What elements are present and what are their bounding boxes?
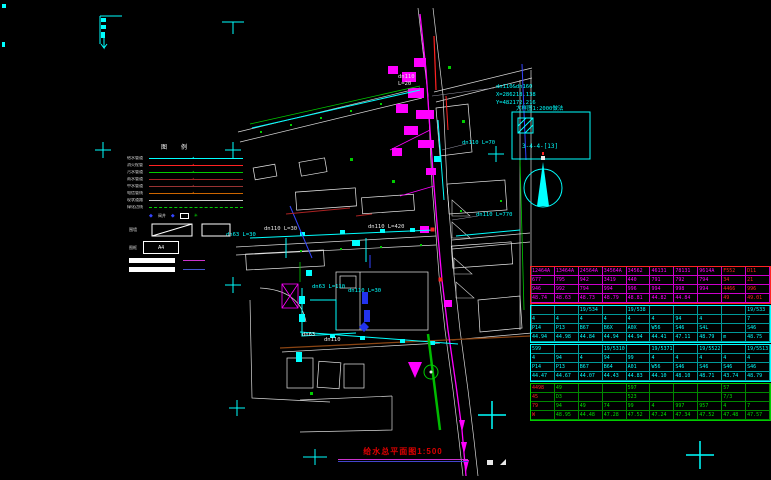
elevation-table: 12464A13464A24564A34564A3456246131781319… bbox=[530, 266, 771, 422]
pipe-label: dn110 L=770 bbox=[476, 212, 512, 218]
legend-symbol-row: ◆ 阀井 ◆ ✳ bbox=[149, 213, 243, 219]
table-cell: S4L bbox=[698, 324, 722, 333]
sheet-size-box: A4 bbox=[143, 241, 179, 254]
legend-title: 图例 bbox=[161, 142, 243, 151]
table-cell: 957 bbox=[698, 402, 722, 411]
table-cell bbox=[555, 306, 579, 315]
table-cell: 44.82 bbox=[650, 294, 674, 303]
legend-item: 污水管道 ▲ bbox=[127, 169, 243, 175]
table-cell: 599 bbox=[531, 345, 555, 354]
table-cell: P14 bbox=[531, 363, 555, 372]
table-cell: 47.52 bbox=[627, 411, 651, 420]
blue-line-sample bbox=[183, 269, 205, 270]
detail-box-code: 3-4-4-[13] bbox=[522, 143, 558, 150]
table-cell: P13 bbox=[555, 324, 579, 333]
pipe-label: dn110 L=70 bbox=[462, 140, 495, 146]
table-cell: S46 bbox=[698, 363, 722, 372]
legend-line-sample bbox=[149, 207, 243, 208]
well-square-icon bbox=[180, 213, 189, 219]
table-cell: 4 bbox=[698, 315, 722, 324]
pipe-label: L=20 bbox=[398, 81, 411, 87]
table-cell bbox=[650, 393, 674, 402]
table-cell: 19/5513 bbox=[746, 345, 770, 354]
table-cell bbox=[674, 384, 698, 393]
legend-line-sample: ▲ bbox=[149, 179, 243, 180]
table-cell: A01 bbox=[627, 363, 651, 372]
table-cell: 19/5522 bbox=[698, 345, 722, 354]
pipe-label: dn63 L=110 bbox=[312, 284, 345, 290]
table-cell: 21 bbox=[746, 276, 770, 285]
table-cell: S46 bbox=[674, 324, 698, 333]
table-cell: 13464A bbox=[555, 267, 579, 276]
table-cell: 996 bbox=[746, 285, 770, 294]
blue-fittings bbox=[359, 292, 370, 332]
table-cell: 794 bbox=[698, 276, 722, 285]
table-cell: D3 bbox=[555, 393, 579, 402]
table-cell: 994 bbox=[698, 285, 722, 294]
table-cell: W56 bbox=[650, 324, 674, 333]
table-cell bbox=[579, 393, 603, 402]
table-cell bbox=[722, 306, 746, 315]
table-section: 12464A13464A24564A34564A3456246131781319… bbox=[530, 266, 771, 304]
table-cell: 4 bbox=[698, 354, 722, 363]
table-cell: 44.43 bbox=[603, 372, 627, 381]
table-cell: 4 bbox=[650, 315, 674, 324]
table-cell: 94 bbox=[555, 354, 579, 363]
table-cell: 99 bbox=[627, 354, 651, 363]
pond-outline bbox=[282, 284, 298, 308]
table-cell: 942 bbox=[579, 276, 603, 285]
table-cell: 34 bbox=[722, 276, 746, 285]
table-cell: 4 bbox=[579, 315, 603, 324]
title-underline bbox=[338, 461, 468, 462]
table-cell: 996 bbox=[627, 285, 651, 294]
table-cell: B67 bbox=[579, 324, 603, 333]
valve-diamond-icon: ◆ bbox=[149, 213, 153, 219]
table-cell: 49.01 bbox=[746, 294, 770, 303]
misc-maroon bbox=[286, 208, 372, 216]
table-cell: 74 bbox=[603, 402, 627, 411]
legend-line-sample bbox=[149, 200, 243, 201]
table-cell: 19/5371 bbox=[650, 345, 674, 354]
table-cell: 47.48 bbox=[722, 411, 746, 420]
table-cell: W bbox=[531, 411, 555, 420]
table-cell: B64 bbox=[603, 363, 627, 372]
table-cell: 78131 bbox=[674, 267, 698, 276]
table-cell bbox=[722, 315, 746, 324]
legend-item: 中水管道 ▲ bbox=[127, 183, 243, 189]
table-cell: 94 bbox=[555, 402, 579, 411]
table-cell: 49 bbox=[579, 402, 603, 411]
legend-item: 消火栓管 ▲ bbox=[127, 162, 243, 168]
table-cell: 79 bbox=[531, 402, 555, 411]
cad-viewport[interactable]: dn110&dn160 X=286218.138 Y=482172.216 dn… bbox=[0, 0, 771, 480]
leader-lines bbox=[432, 88, 494, 220]
table-cell: 19/533 bbox=[746, 306, 770, 315]
table-cell: 523 bbox=[627, 393, 651, 402]
legend-item: 绿化边线 bbox=[127, 204, 243, 210]
table-cell: 4 bbox=[555, 315, 579, 324]
sewer-lines bbox=[250, 86, 524, 430]
table-cell: 94 bbox=[603, 354, 627, 363]
table-cell bbox=[674, 393, 698, 402]
table-section: 4498495975745D35237/37994497499499795747… bbox=[530, 383, 771, 421]
table-cell: 44.84 bbox=[674, 294, 698, 303]
table-cell bbox=[531, 306, 555, 315]
table-cell bbox=[603, 384, 627, 393]
table-cell: 47.57 bbox=[746, 411, 770, 420]
table-cell: 4 bbox=[746, 354, 770, 363]
bottom-center-marks bbox=[487, 459, 506, 465]
pipe-label: dn63 bbox=[302, 332, 315, 338]
table-cell: B6X bbox=[603, 324, 627, 333]
detail-box: 大样图1:2000做法 3-4-4-[13] bbox=[512, 104, 590, 159]
legend-bar-row bbox=[129, 258, 243, 263]
table-cell: 44.47 bbox=[531, 372, 555, 381]
table-section: 19/53419/53819/5334444449447P14P13B67B6X… bbox=[530, 305, 771, 343]
table-cell: 48.79 bbox=[698, 333, 722, 342]
valve-diamond-icon: ◆ bbox=[171, 213, 175, 219]
legend-scale-row: 图框 A4 bbox=[129, 241, 243, 254]
table-cell: 34562 bbox=[627, 267, 651, 276]
road-lines bbox=[236, 8, 532, 476]
table-cell bbox=[603, 393, 627, 402]
pipe-label: dn110 L=420 bbox=[368, 224, 404, 230]
sheet-title: 给水总平面图1:500 bbox=[338, 446, 468, 462]
table-cell: 998 bbox=[674, 285, 698, 294]
table-cell bbox=[579, 345, 603, 354]
coord-x-label: X=286218.138 bbox=[496, 92, 536, 98]
north-arrow bbox=[524, 152, 562, 207]
table-cell: 44.84 bbox=[579, 333, 603, 342]
table-cell: 997 bbox=[674, 402, 698, 411]
table-cell: B67 bbox=[579, 363, 603, 372]
table-cell: 48.71 bbox=[698, 372, 722, 381]
table-cell: 24564A bbox=[579, 267, 603, 276]
table-cell: m bbox=[722, 333, 746, 342]
table-cell: 4 bbox=[650, 354, 674, 363]
valve-wells bbox=[296, 156, 441, 362]
table-cell: 792 bbox=[674, 276, 698, 285]
table-cell: 4466 bbox=[722, 285, 746, 294]
legend-panel: 图例 给水管道 ▲ 消火栓管 ▲ 污水管道 ▲ 雨水管道 ▲ 中水管道 ▲ 电信… bbox=[127, 142, 243, 272]
table-cell: 43.74 bbox=[722, 372, 746, 381]
table-cell: 44.94 bbox=[603, 333, 627, 342]
table-cell: 47.52 bbox=[698, 411, 722, 420]
table-cell: P14 bbox=[531, 324, 555, 333]
table-cell bbox=[603, 306, 627, 315]
table-cell: 19/5310 bbox=[603, 345, 627, 354]
table-cell: 4 bbox=[603, 315, 627, 324]
table-cell: 7 bbox=[746, 402, 770, 411]
table-cell: D11 bbox=[746, 267, 770, 276]
pipe-label: dn110 bbox=[398, 74, 415, 80]
table-cell: F552 bbox=[722, 267, 746, 276]
legend-line-sample: ▲ bbox=[149, 172, 243, 173]
table-cell: 44.48 bbox=[579, 411, 603, 420]
table-cell: 4 bbox=[722, 402, 746, 411]
title-underline bbox=[338, 459, 468, 460]
table-cell: 94 bbox=[674, 315, 698, 324]
table-cell bbox=[722, 345, 746, 354]
table-cell: 48.75 bbox=[746, 333, 770, 342]
table-cell: 597 bbox=[627, 384, 651, 393]
table-cell: P13 bbox=[555, 363, 579, 372]
table-cell: 677 bbox=[531, 276, 555, 285]
table-cell: 48.73 bbox=[579, 294, 603, 303]
table-cell: 994 bbox=[650, 285, 674, 294]
table-cell: 44.41 bbox=[650, 333, 674, 342]
table-cell: 34564A bbox=[603, 267, 627, 276]
table-cell: 48.81 bbox=[627, 294, 651, 303]
table-cell: A0X bbox=[627, 324, 651, 333]
manhole-dot bbox=[430, 371, 433, 374]
table-cell: 44.10 bbox=[650, 372, 674, 381]
table-cell: 4 bbox=[531, 315, 555, 324]
table-cell: 3419 bbox=[603, 276, 627, 285]
table-cell: 48.95 bbox=[555, 411, 579, 420]
table-cell bbox=[698, 306, 722, 315]
table-cell bbox=[746, 393, 770, 402]
table-cell bbox=[698, 384, 722, 393]
table-cell: 44.67 bbox=[555, 372, 579, 381]
table-cell: 47.11 bbox=[674, 333, 698, 342]
table-cell bbox=[722, 324, 746, 333]
table-cell: 7/3 bbox=[722, 393, 746, 402]
table-cell: 7 bbox=[746, 315, 770, 324]
legend-item: 雨水管道 ▲ bbox=[127, 176, 243, 182]
table-cell bbox=[555, 345, 579, 354]
table-cell: S46 bbox=[746, 324, 770, 333]
block-symbol bbox=[201, 223, 231, 237]
magenta-line-sample bbox=[183, 260, 205, 261]
legend-item: 给水管道 ▲ bbox=[127, 155, 243, 161]
table-cell: 57 bbox=[722, 384, 746, 393]
table-cell: 992 bbox=[555, 285, 579, 294]
scale-bar bbox=[129, 258, 175, 263]
table-cell: 4498 bbox=[531, 384, 555, 393]
legend-line-sample: ▲ bbox=[149, 158, 243, 159]
legend-line-sample: ▲ bbox=[149, 165, 243, 166]
legend-fence-row: 围墙 bbox=[129, 223, 243, 237]
legend-line-sample: ▲ bbox=[149, 186, 243, 187]
table-cell: S46 bbox=[674, 363, 698, 372]
table-cell bbox=[746, 384, 770, 393]
detail-box-header: 大样图1:2000做法 bbox=[516, 104, 564, 112]
sheet-title-text: 给水总平面图1:500 bbox=[338, 446, 468, 457]
table-cell: 48.79 bbox=[746, 372, 770, 381]
table-cell: 4 bbox=[674, 354, 698, 363]
table-section: 59919/531019/537119/552219/5513494494994… bbox=[530, 344, 771, 382]
table-cell bbox=[698, 393, 722, 402]
legend-line-sample: ▲ bbox=[149, 193, 243, 194]
table-cell: 9614A bbox=[698, 267, 722, 276]
table-cell: 45 bbox=[531, 393, 555, 402]
pipe-label: dn110&dn160 bbox=[496, 84, 532, 90]
table-cell: 994 bbox=[603, 285, 627, 294]
legend-item: 现状道路 bbox=[127, 197, 243, 203]
table-cell: 49 bbox=[722, 294, 746, 303]
pipe-labels: dn110&dn160 X=286218.138 Y=482172.216 dn… bbox=[226, 74, 536, 343]
table-cell bbox=[698, 294, 722, 303]
table-cell: 44.94 bbox=[531, 333, 555, 342]
pipe-label: dn110 bbox=[324, 337, 341, 343]
table-cell bbox=[579, 384, 603, 393]
table-cell: 46131 bbox=[650, 267, 674, 276]
table-cell bbox=[627, 345, 651, 354]
scale-bar bbox=[129, 267, 175, 272]
table-cell bbox=[674, 345, 698, 354]
table-cell: 946 bbox=[531, 285, 555, 294]
pipe-label: dn110 L=30 bbox=[348, 288, 381, 294]
table-cell: 48.79 bbox=[603, 294, 627, 303]
pipe-label: dn110 L=30 bbox=[264, 226, 297, 232]
table-cell: 44.07 bbox=[579, 372, 603, 381]
table-cell bbox=[674, 306, 698, 315]
table-cell: S46 bbox=[746, 363, 770, 372]
table-cell: 12464A bbox=[531, 267, 555, 276]
legend-item: 电信管线 ▲ bbox=[127, 190, 243, 196]
table-cell: 794 bbox=[579, 285, 603, 294]
table-cell: 48.74 bbox=[531, 294, 555, 303]
table-cell: 4 bbox=[579, 354, 603, 363]
table-cell: 19/538 bbox=[627, 306, 651, 315]
tree-symbol-icon: ✳ bbox=[194, 213, 198, 219]
table-cell: 47.28 bbox=[603, 411, 627, 420]
table-cell: 4 bbox=[531, 354, 555, 363]
table-cell bbox=[650, 306, 674, 315]
table-cell: W56 bbox=[650, 363, 674, 372]
table-cell: 44.83 bbox=[627, 372, 651, 381]
table-cell bbox=[650, 384, 674, 393]
table-cell: 47.34 bbox=[674, 411, 698, 420]
table-cell: 44.94 bbox=[627, 333, 651, 342]
table-cell: 19/534 bbox=[579, 306, 603, 315]
table-cell: 4 bbox=[722, 354, 746, 363]
table-cell: 440 bbox=[627, 276, 651, 285]
table-cell: 47.24 bbox=[650, 411, 674, 420]
table-cell: 791 bbox=[650, 276, 674, 285]
table-cell: 49 bbox=[555, 384, 579, 393]
table-cell: 44.98 bbox=[555, 333, 579, 342]
fence-symbol bbox=[151, 223, 193, 237]
table-cell: 48.10 bbox=[674, 372, 698, 381]
table-cell: 795 bbox=[555, 276, 579, 285]
table-cell: S46 bbox=[722, 363, 746, 372]
table-cell: 4 bbox=[650, 402, 674, 411]
table-cell: 4 bbox=[627, 315, 651, 324]
legend-bar-row bbox=[129, 267, 243, 272]
table-cell: 48.63 bbox=[555, 294, 579, 303]
table-cell: 99 bbox=[627, 402, 651, 411]
